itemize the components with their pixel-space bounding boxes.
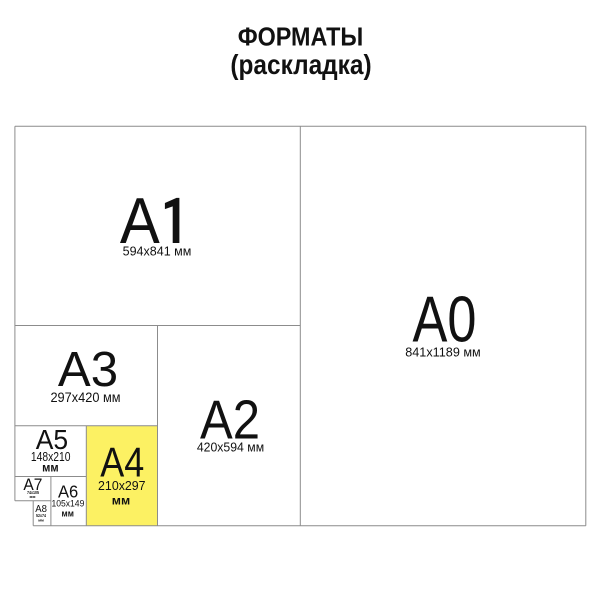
svg-text:52x74: 52x74 [36, 513, 46, 518]
svg-text:420x594 мм: 420x594 мм [197, 440, 264, 455]
svg-text:мм: мм [30, 494, 36, 499]
svg-text:210x297: 210x297 [98, 478, 146, 493]
svg-text:(раскладка): (раскладка) [230, 49, 371, 80]
svg-text:мм: мм [112, 496, 130, 508]
svg-text:мм: мм [42, 463, 59, 475]
svg-text:мм: мм [62, 509, 75, 519]
svg-text:ФОРМАТЫ: ФОРМАТЫ [238, 22, 364, 52]
svg-text:841x1189 мм: 841x1189 мм [405, 345, 481, 360]
svg-text:594x841 мм: 594x841 мм [123, 244, 192, 259]
svg-text:297x420 мм: 297x420 мм [50, 390, 120, 405]
svg-text:мм: мм [38, 518, 44, 522]
